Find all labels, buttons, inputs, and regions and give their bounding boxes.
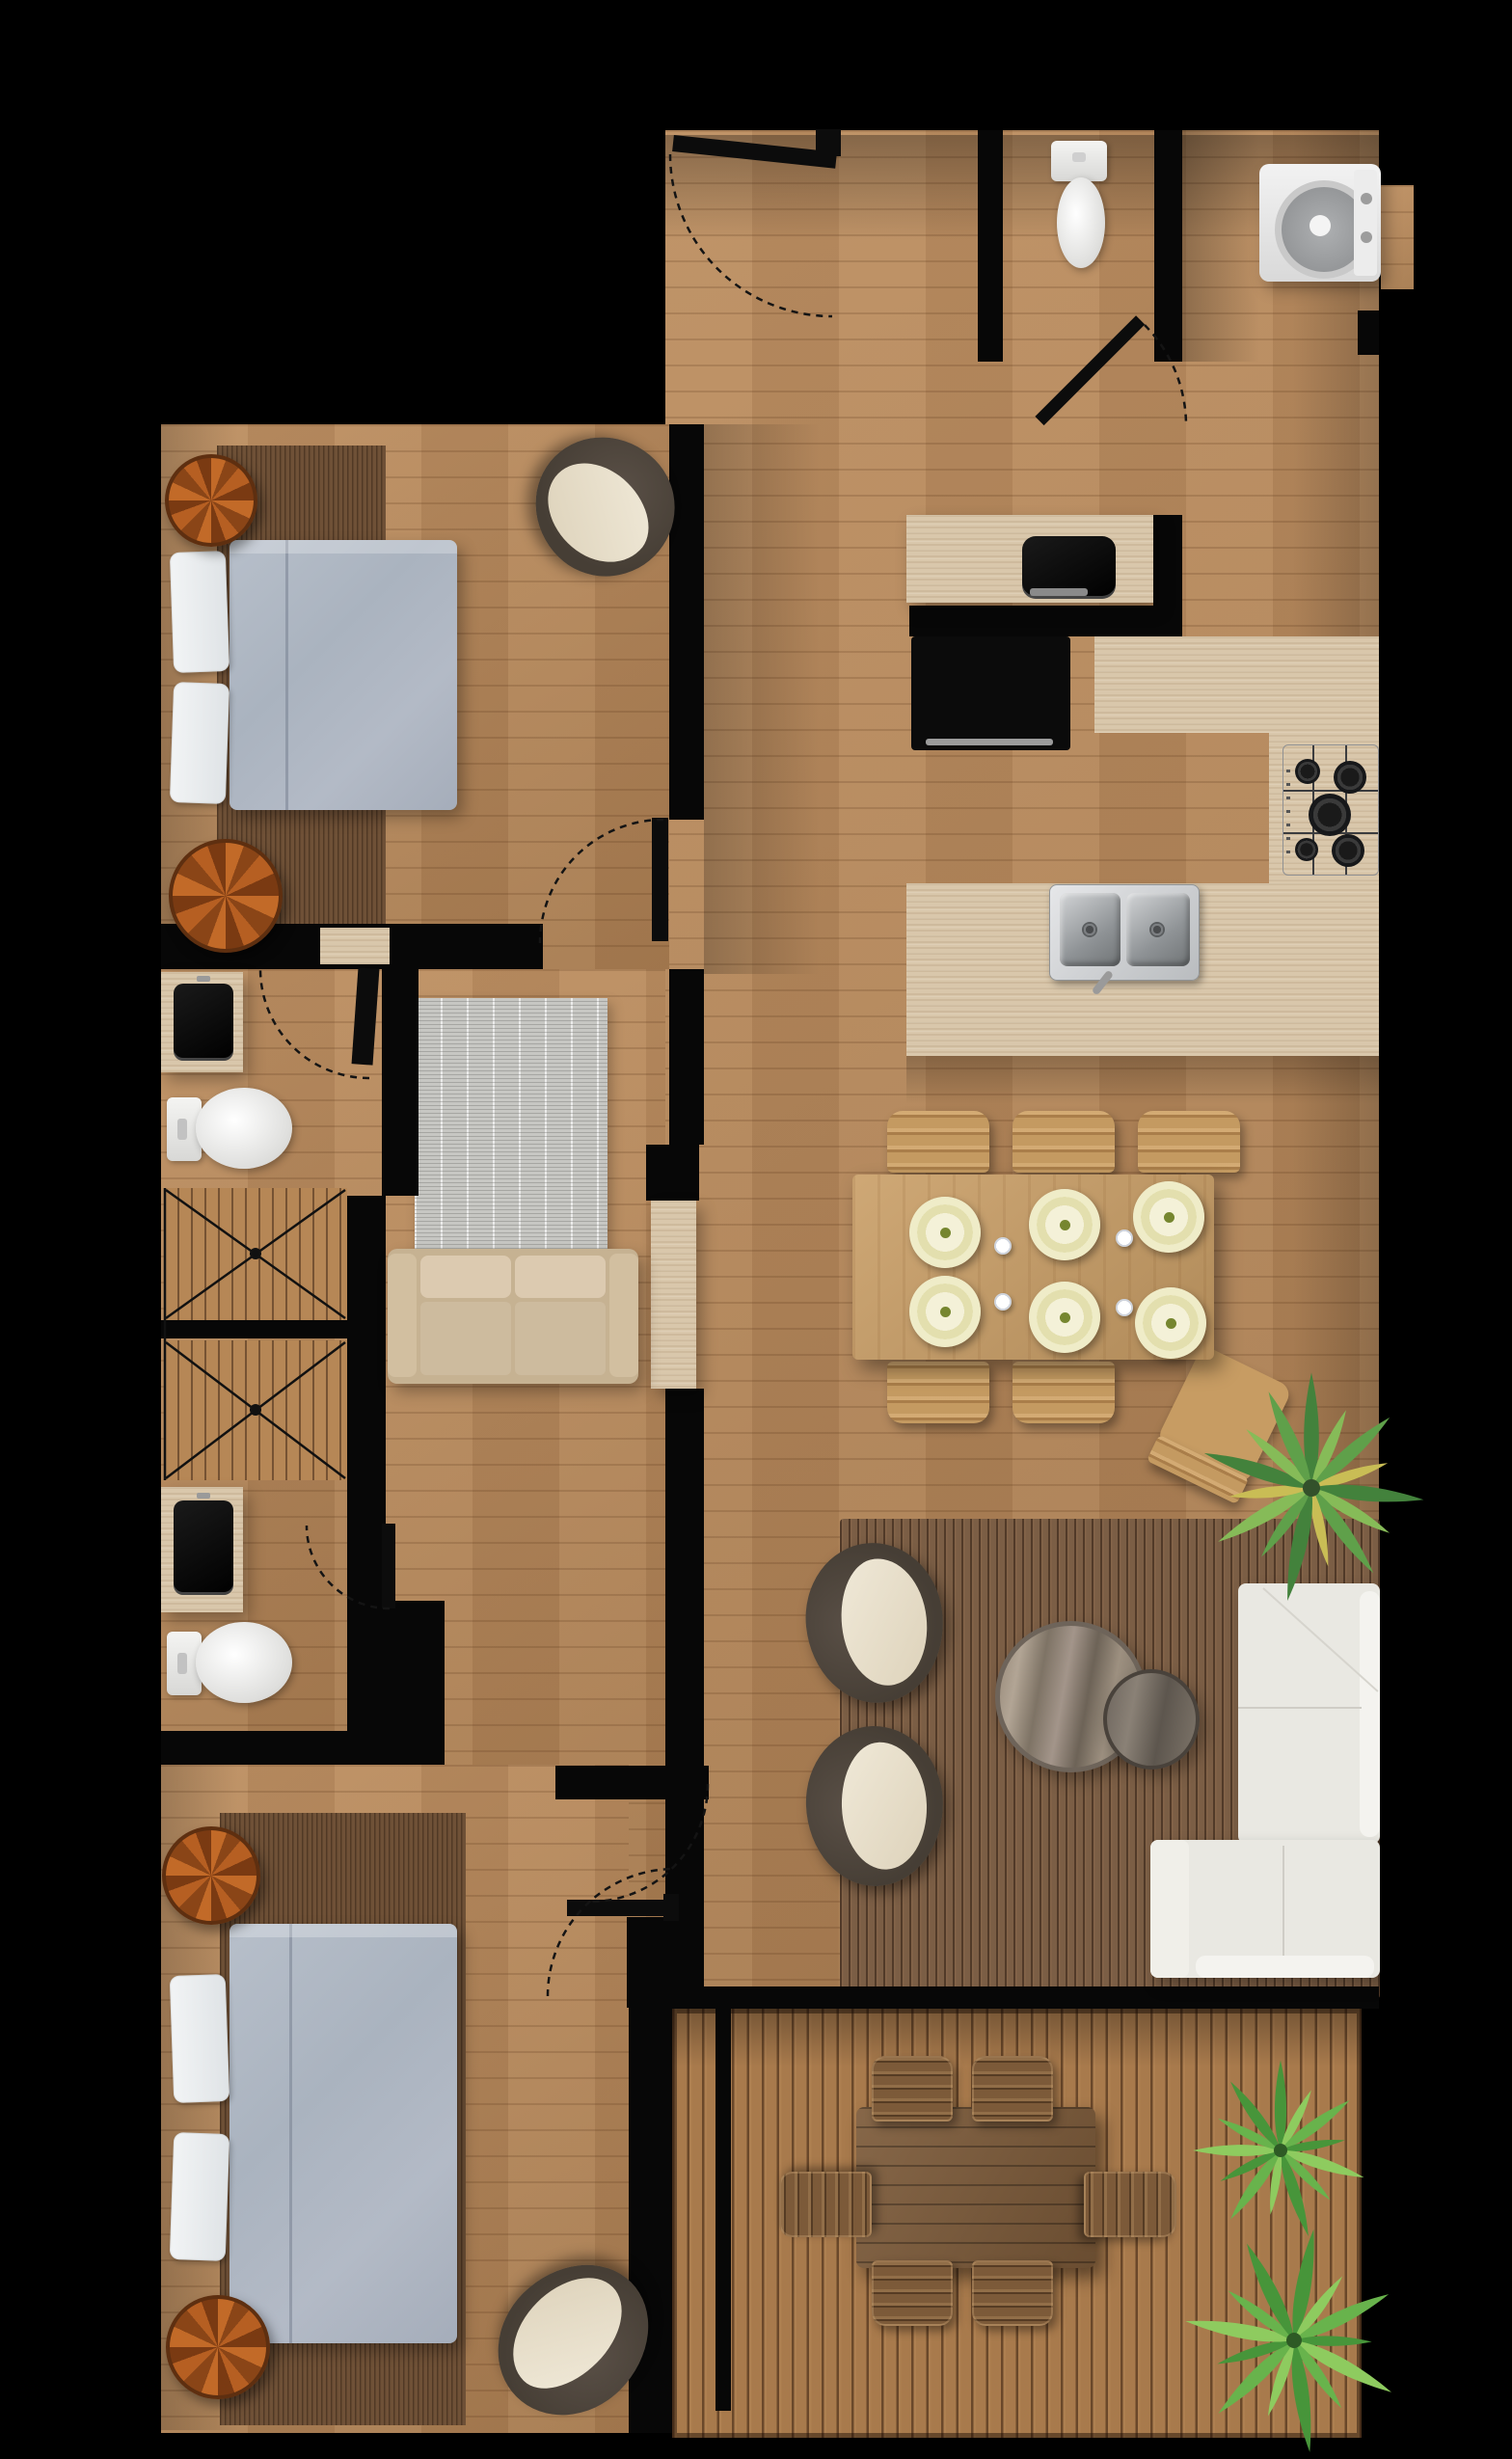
place-setting-4 [909, 1276, 981, 1347]
washer-panel [1354, 170, 1377, 276]
wall-stair-landing [161, 1320, 347, 1338]
place-setting-1 [909, 1197, 981, 1268]
place-setting-5 [1029, 1282, 1100, 1353]
place-setting-2 [1029, 1189, 1100, 1260]
outdoor-dining-table [856, 2107, 1095, 2268]
lounge-armchair-2-cushion [840, 1741, 930, 1872]
sofa-back-bolster-bottom [1196, 1956, 1374, 1978]
outdoor-chair-6 [1084, 2172, 1176, 2237]
washer-knob-1 [1361, 193, 1372, 204]
wall-kitchen-vertical [1153, 515, 1182, 606]
bed-1 [229, 540, 457, 810]
outdoor-chair-4 [972, 2260, 1053, 2326]
sink-drain-left [1082, 922, 1097, 937]
bathroom1-toilet-bowl [196, 1088, 292, 1169]
bed-1-cuff [229, 540, 457, 554]
floor-plan-canvas [0, 0, 1512, 2459]
bed-1-fold [285, 540, 288, 810]
cup-4 [1116, 1299, 1133, 1316]
wall-wc-right [1154, 130, 1182, 362]
exterior-ledge [1381, 185, 1414, 289]
cup-3 [994, 1293, 1012, 1311]
nightstand-1b [169, 839, 283, 953]
double-sink [1049, 884, 1200, 981]
nightstand-2b [166, 2295, 270, 2399]
wall-bathroom2-bottom [161, 1731, 445, 1765]
bathroom2-black-basin [174, 1500, 233, 1595]
side-table-round [1103, 1669, 1200, 1770]
outdoor-chair-3 [872, 2260, 953, 2326]
place-setting-6 [1135, 1287, 1206, 1359]
door-bedroom-1 [652, 818, 668, 941]
bathroom1-black-basin [174, 984, 233, 1061]
gray-striped-rug [415, 998, 607, 1260]
sofa-cushion-seam-2 [1282, 1846, 1284, 1956]
bed-2-pillow-b [170, 2132, 230, 2261]
sofa-back-bolster-right [1360, 1591, 1380, 1837]
agave-plant-1 [1189, 2059, 1372, 2242]
burner-large-1 [1334, 761, 1366, 794]
stair-flight-lower [164, 1340, 347, 1480]
wall-laundry-return [1358, 311, 1379, 355]
sink-drain-right [1149, 922, 1165, 937]
refrigerator [911, 636, 1070, 750]
cup-2 [1116, 1229, 1133, 1247]
lounge-armchair-1-cushion [835, 1554, 932, 1689]
wall-bedroom1-right [669, 424, 704, 820]
potted-palm-plant [1196, 1367, 1427, 1608]
door-bathroom-2 [382, 1524, 395, 1608]
outdoor-chair-2 [972, 2056, 1053, 2121]
burner-center-wok [1309, 794, 1351, 836]
washer-hub [1309, 215, 1331, 236]
bathroom2-flush [177, 1653, 187, 1674]
wall-corridor-band [555, 1766, 709, 1799]
refrigerator-handle [926, 739, 1053, 745]
wall-bathroom1-right [382, 969, 418, 1196]
dining-chair-3 [1138, 1111, 1240, 1173]
cup-1 [994, 1237, 1012, 1255]
bathroom1-faucet [197, 976, 210, 982]
gas-cooktop [1282, 744, 1379, 876]
nightstand-2a [162, 1826, 260, 1925]
cooktop-knobs [1286, 765, 1290, 853]
place-setting-3 [1133, 1181, 1204, 1253]
washer-knob-2 [1361, 231, 1372, 243]
door-bedroom-2 [567, 1900, 675, 1916]
corner-sofa-long-seat [1238, 1583, 1380, 1844]
sofa-armrest [1150, 1840, 1189, 1978]
bed-2 [229, 1924, 457, 2343]
wall-wc-left [978, 130, 1003, 362]
bed-1-pillow-a [170, 551, 229, 673]
bathroom2-toilet-bowl [196, 1622, 292, 1703]
bed-2-cuff [229, 1924, 457, 1937]
agave-plant-2 [1181, 2228, 1408, 2454]
burner-large-2 [1332, 834, 1364, 867]
door-entry-hinge [816, 129, 841, 156]
loveseat-back-pillow-left [420, 1256, 511, 1298]
wall-nook-right-upper [669, 969, 704, 1145]
wall-console-header [646, 1145, 699, 1201]
bed-2-pillow-a [170, 1974, 230, 2103]
outdoor-chair-1 [872, 2056, 953, 2121]
burner-small-2 [1295, 838, 1318, 861]
wc-flush-button [1072, 152, 1086, 162]
loveseat-arm-left [388, 1254, 417, 1377]
loveseat-back-pillow-right [515, 1256, 606, 1298]
dining-chair-4 [887, 1362, 989, 1423]
washing-machine [1259, 164, 1381, 282]
outdoor-chair-5 [779, 2172, 872, 2237]
stair-flight-upper [164, 1188, 347, 1320]
burner-small-1 [1295, 759, 1320, 784]
loveseat-seat-left [420, 1302, 511, 1375]
wall-kitchen-horizontal [909, 606, 1182, 636]
dining-chair-1 [887, 1111, 989, 1173]
bed-1-pillow-b [170, 682, 229, 804]
travertine-console [651, 1201, 696, 1389]
loveseat-arm-right [609, 1254, 638, 1377]
wall-stair-right [347, 1196, 386, 1765]
dining-chair-5 [1012, 1362, 1115, 1423]
wall-niche-shelf [320, 928, 390, 964]
basin-rail [1030, 588, 1088, 596]
dining-chair-2 [1012, 1111, 1115, 1173]
bed-2-fold [289, 1924, 292, 2343]
loveseat-seat-right [515, 1302, 606, 1375]
bathroom1-flush [177, 1119, 187, 1140]
door-bedroom-2-hinge [663, 1894, 679, 1921]
wall-balcony-top [665, 1986, 1379, 2009]
wall-deck-divider [715, 2009, 731, 2411]
wc-toilet-bowl [1057, 177, 1105, 268]
nightstand-1a [165, 454, 257, 547]
sofa-cushion-seam-1 [1238, 1707, 1362, 1709]
bathroom2-faucet [197, 1493, 210, 1499]
